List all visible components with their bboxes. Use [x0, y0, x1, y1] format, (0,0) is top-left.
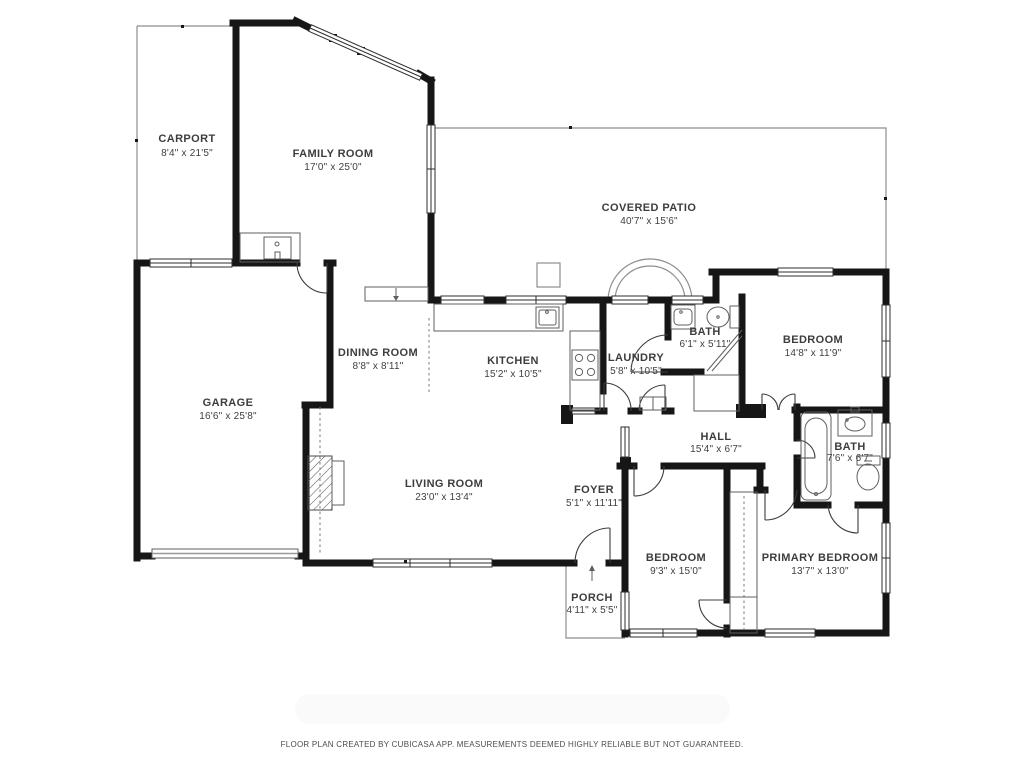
svg-text:FAMILY ROOM: FAMILY ROOM — [293, 148, 374, 160]
svg-text:HALL: HALL — [701, 431, 732, 443]
svg-text:17'0" x 25'0": 17'0" x 25'0" — [304, 162, 362, 173]
window-kitchen-left — [441, 296, 484, 304]
window-bedroom-bottom — [630, 629, 697, 637]
room-label-porch: PORCH 4'11" x 5'5" — [567, 592, 618, 616]
room-label-garage: GARAGE 16'6" x 25'8" — [199, 397, 257, 422]
door-hall-to-laundry — [604, 383, 631, 411]
svg-text:8'8" x 8'11": 8'8" x 8'11" — [353, 361, 404, 372]
room-label-covered-patio: COVERED PATIO 40'7" x 15'6" — [602, 202, 697, 227]
doors — [297, 263, 858, 628]
svg-text:15'4" x 6'7": 15'4" x 6'7" — [690, 444, 742, 455]
room-label-foyer: FOYER 5'1" x 11'11" — [566, 484, 622, 509]
svg-text:8'4" x 21'5": 8'4" x 21'5" — [161, 148, 213, 159]
svg-text:CARPORT: CARPORT — [158, 133, 215, 145]
svg-text:4'11" x 5'5": 4'11" x 5'5" — [567, 605, 618, 616]
patio-equipment — [537, 263, 560, 287]
svg-text:FOYER: FOYER — [574, 484, 614, 496]
svg-text:KITCHEN: KITCHEN — [487, 355, 539, 367]
footer-disclaimer: FLOOR PLAN CREATED BY CUBICASA APP. MEAS… — [0, 740, 1024, 749]
window-kitchen-right — [506, 296, 566, 304]
svg-text:9'3" x 15'0": 9'3" x 15'0" — [650, 566, 702, 577]
door-front-entry — [575, 528, 610, 563]
room-label-dining-room: DINING ROOM 8'8" x 8'11" — [338, 347, 418, 372]
window-bath-lower-right — [882, 423, 890, 458]
window-bedroom-porch — [621, 592, 629, 630]
svg-text:BEDROOM: BEDROOM — [783, 334, 843, 346]
door-family-to-garage — [297, 263, 327, 293]
room-label-bedroom-right: BEDROOM 14'8" x 11'9" — [783, 334, 843, 359]
room-label-bath-lower: BATH 7'6" x 6'7" — [827, 441, 873, 464]
window-living-triple — [373, 559, 492, 567]
svg-text:40'7" x 15'6": 40'7" x 15'6" — [620, 216, 678, 227]
bath-upper-toilet — [707, 306, 739, 328]
door-bedroom-closet — [699, 600, 727, 628]
svg-text:PORCH: PORCH — [571, 592, 613, 604]
room-label-laundry: LAUNDRY 5'8" x 10'5" — [608, 352, 664, 377]
window-bedroom-right — [882, 305, 890, 377]
patio-arch-outer — [608, 259, 692, 301]
window-family-diagonal — [309, 25, 423, 80]
window-garage-top — [150, 259, 232, 267]
garage-door — [152, 549, 298, 558]
covered-patio-outline — [432, 128, 886, 271]
opening-kitchen-foyer — [572, 408, 595, 414]
svg-text:COVERED PATIO: COVERED PATIO — [602, 202, 697, 214]
svg-text:5'1" x 11'11": 5'1" x 11'11" — [566, 498, 622, 509]
window-bath-upper — [672, 296, 703, 304]
svg-text:GARAGE: GARAGE — [203, 397, 254, 409]
svg-text:5'8" x 10'5": 5'8" x 10'5" — [610, 366, 662, 377]
window-primary-bottom — [765, 629, 815, 637]
room-label-bedroom-bottom: BEDROOM 9'3" x 15'0" — [646, 552, 706, 577]
room-label-living-room: LIVING ROOM 23'0" x 13'4" — [405, 478, 483, 503]
room-label-primary-bedroom: PRIMARY BEDROOM 13'7" x 13'0" — [762, 552, 879, 577]
room-label-carport: CARPORT 8'4" x 21'5" — [158, 133, 215, 159]
svg-text:BATH: BATH — [834, 441, 865, 453]
door-primary-entry — [765, 490, 797, 520]
svg-text:23'0" x 13'4": 23'0" x 13'4" — [415, 492, 473, 503]
svg-text:DINING ROOM: DINING ROOM — [338, 347, 418, 359]
window-laundry-patio-door — [612, 296, 648, 304]
fixtures — [135, 25, 887, 633]
window-family-right — [427, 125, 435, 213]
opening-foyer-hall — [621, 427, 629, 457]
door-bedroom-double — [762, 394, 795, 410]
watermark-ghost — [295, 694, 730, 724]
svg-text:6'1" x 5'11": 6'1" x 5'11" — [680, 339, 731, 350]
window-primary-right — [882, 523, 890, 593]
family-room-step — [365, 287, 428, 301]
svg-text:7'6" x 6'7": 7'6" x 6'7" — [827, 453, 873, 464]
door-bedroom-bottom — [634, 466, 664, 496]
svg-text:15'2" x 10'5": 15'2" x 10'5" — [484, 369, 542, 380]
svg-text:BEDROOM: BEDROOM — [646, 552, 706, 564]
svg-text:16'6" x 25'8": 16'6" x 25'8" — [199, 411, 257, 422]
stove — [572, 350, 598, 380]
room-label-bath-upper: BATH 6'1" x 5'11" — [680, 326, 731, 350]
window-bedroom-top — [778, 268, 833, 276]
svg-text:PRIMARY BEDROOM: PRIMARY BEDROOM — [762, 552, 879, 564]
svg-text:LAUNDRY: LAUNDRY — [608, 352, 664, 364]
entry-arrow-icon — [589, 565, 595, 581]
measure-ticks — [135, 25, 887, 563]
room-label-family-room: FAMILY ROOM 17'0" x 25'0" — [293, 148, 374, 173]
door-bath-to-primary — [828, 505, 858, 533]
room-label-kitchen: KITCHEN 15'2" x 10'5" — [484, 355, 542, 380]
room-label-hall: HALL 15'4" x 6'7" — [690, 431, 742, 455]
fireplace — [308, 456, 344, 510]
door-hall-closet — [639, 385, 666, 411]
svg-text:13'7" x 13'0": 13'7" x 13'0" — [791, 566, 849, 577]
bedroom-closets — [730, 492, 757, 633]
floor-plan-page: CARPORT 8'4" x 21'5" FAMILY ROOM 17'0" x… — [0, 0, 1024, 768]
floor-plan-svg: CARPORT 8'4" x 21'5" FAMILY ROOM 17'0" x… — [0, 0, 1024, 768]
outdoor-areas — [137, 26, 886, 638]
walls — [137, 21, 886, 634]
svg-text:LIVING ROOM: LIVING ROOM — [405, 478, 483, 490]
hall-closet — [694, 375, 739, 411]
svg-text:14'8" x 11'9": 14'8" x 11'9" — [785, 348, 842, 359]
room-labels: CARPORT 8'4" x 21'5" FAMILY ROOM 17'0" x… — [158, 133, 878, 616]
svg-text:BATH: BATH — [689, 326, 720, 338]
family-room-bar-sink — [240, 233, 300, 262]
